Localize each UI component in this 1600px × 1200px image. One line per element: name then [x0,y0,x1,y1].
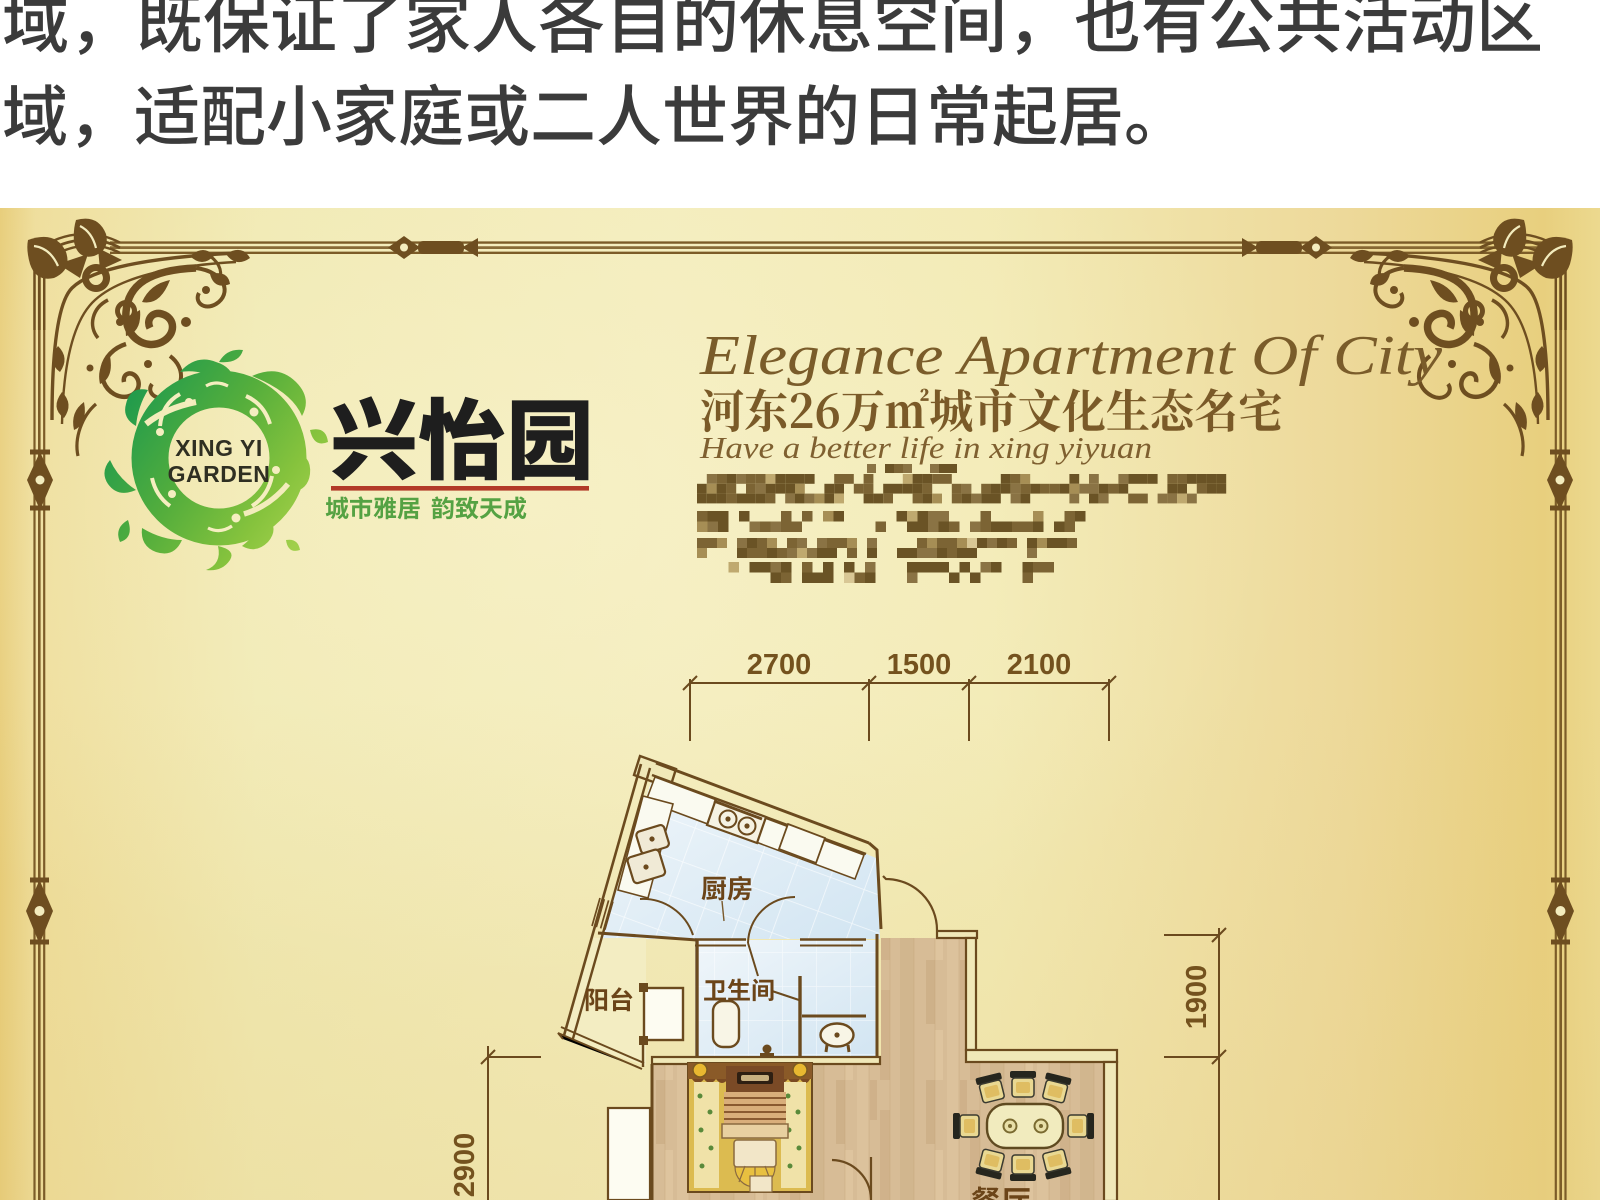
svg-text:Elegance Apartment Of City: Elegance Apartment Of City [699,325,1442,387]
svg-text:2100: 2100 [1007,649,1072,681]
svg-text:Have a better life in xing yiy: Have a better life in xing yiyuan [699,430,1152,465]
svg-text:XING YI: XING YI [175,435,262,461]
svg-text:2900: 2900 [449,1133,481,1198]
svg-text:GARDEN: GARDEN [168,461,271,487]
svg-text:2700: 2700 [747,649,812,681]
svg-text:1900: 1900 [1181,965,1213,1030]
svg-text:1500: 1500 [887,649,952,681]
